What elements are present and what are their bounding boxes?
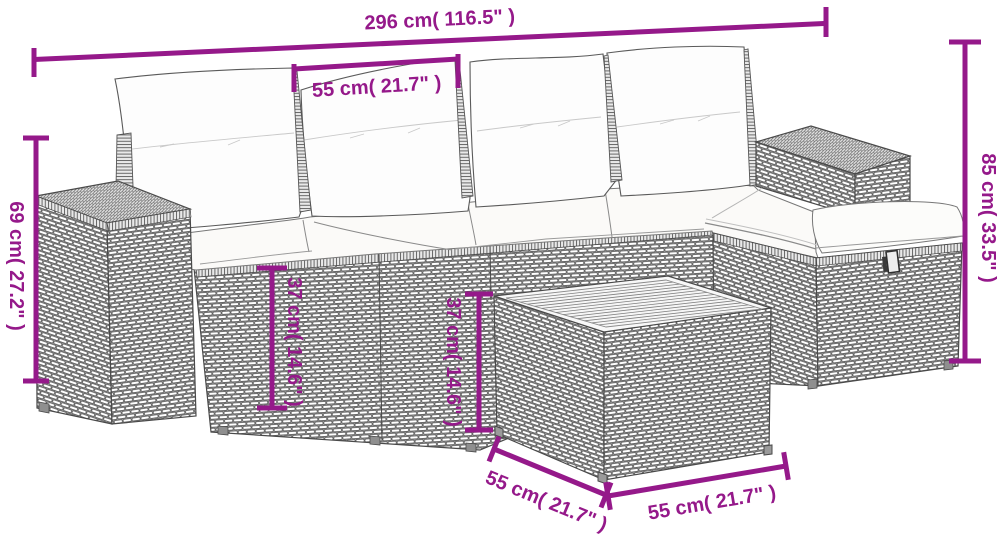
svg-text:37 cm( 14.6" ): 37 cm( 14.6" ) (442, 297, 464, 427)
svg-text:85 cm( 33.5" ): 85 cm( 33.5" ) (977, 153, 999, 283)
svg-text:37 cm( 14.6" ): 37 cm( 14.6" ) (283, 277, 305, 407)
svg-text:69 cm( 27.2" ): 69 cm( 27.2" ) (5, 201, 27, 331)
